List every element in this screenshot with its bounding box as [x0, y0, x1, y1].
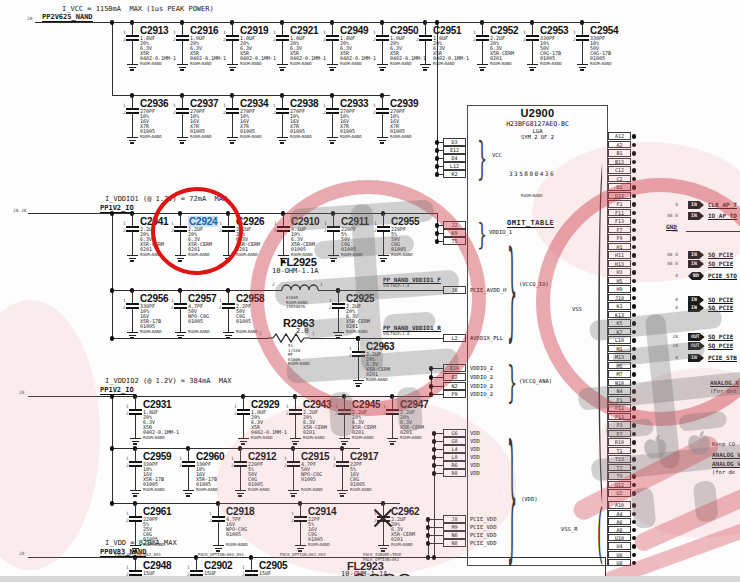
wire-v	[182, 114, 183, 137]
cap-value-C2941: 2.2UF 20% 6.3V X5R-CERM 0201	[140, 227, 164, 252]
cap-plate	[126, 226, 139, 228]
junction-dot	[632, 415, 636, 419]
cap-plate	[419, 35, 432, 37]
terminal-number: 1	[373, 103, 376, 108]
ground-icon	[127, 64, 138, 65]
wire-v	[392, 396, 393, 409]
chip-pin-A2: A2	[608, 141, 631, 148]
pin-number: 88 8	[662, 213, 678, 218]
chip-pin-D3: D3	[443, 138, 466, 145]
chip-group-label: (VCCQ_ANA)	[519, 378, 552, 384]
cap-value-C2937: 270PF 10% 16V X7R 01005	[190, 109, 205, 134]
terminal-number: 2	[126, 463, 129, 468]
net-label: PCIE_STB	[708, 354, 737, 362]
ground-icon	[377, 64, 388, 65]
junction-dot	[632, 544, 636, 548]
junction-dot	[632, 457, 636, 461]
chip-pin-J6: J6	[443, 286, 466, 293]
ground-icon	[390, 443, 393, 444]
chip-net-label: VSS	[572, 306, 582, 312]
ground-icon	[422, 67, 429, 68]
cap-room-note: ROOM=NAND	[143, 488, 165, 493]
ground-icon	[423, 69, 426, 70]
wire-v	[180, 213, 181, 226]
junction-dot	[110, 288, 114, 292]
side-note: ANALOG_V	[712, 451, 740, 459]
wire-v	[283, 232, 284, 255]
ground-icon	[290, 438, 301, 439]
wire-v	[188, 448, 189, 461]
cap-plate	[352, 351, 365, 353]
chip-pin-U2: U2	[608, 489, 631, 496]
net-flag-in-icon: IN	[688, 354, 704, 362]
net-flag-bd-icon: BD	[688, 272, 704, 280]
ground-icon	[327, 137, 338, 138]
wire-v	[332, 22, 333, 35]
wire-v	[112, 22, 113, 95]
terminal-number: 1	[324, 221, 327, 226]
ground-icon	[180, 69, 183, 70]
ground-icon	[293, 443, 296, 444]
pin-number: 8	[662, 305, 678, 310]
net-label: SQ_PCIE	[708, 296, 733, 304]
cap-value-C2962: 2.2UF 20% 6.3V X5R-CERM 0201	[391, 517, 415, 542]
junction-dot	[435, 156, 439, 160]
group-brace: }	[477, 220, 487, 248]
chip-pin-P7: P7	[608, 430, 631, 437]
cap-value-C2915: 4.7PF 50V NPO-C0G 01005	[301, 462, 322, 482]
pin-number: 8	[662, 273, 678, 278]
side-note: (For det	[710, 388, 737, 394]
net-label: SQ_PCIE	[708, 251, 733, 259]
wire-v	[482, 41, 483, 64]
wire-v	[383, 232, 384, 255]
chip-pin-label: PCIE_VDD	[470, 540, 497, 546]
junction-dot	[632, 440, 636, 444]
junction-dot	[632, 389, 636, 393]
terminal-number: 2	[274, 228, 277, 233]
terminal-number: 2	[219, 228, 222, 233]
ground-icon	[179, 67, 186, 68]
cap-room-note: ROOM=NAND	[366, 378, 388, 383]
chip-pin-H9: H9	[608, 285, 631, 292]
cap-room-note: ROOM=NAND	[390, 62, 412, 67]
junction-dot	[429, 392, 433, 396]
wire-h	[28, 396, 431, 397]
chip-pin-L10: L10	[608, 336, 631, 343]
terminal-number: 2	[123, 228, 126, 233]
resistor-notes: 5% 1/32W MF 01005 ROOM=NAND	[288, 344, 310, 367]
wire-v	[582, 22, 583, 35]
junction-dot	[110, 394, 114, 398]
terminal-number: 2	[223, 37, 226, 42]
cap-room-note: ROOM=NAND	[590, 62, 612, 67]
wire-h	[428, 527, 443, 528]
wire-v	[132, 22, 133, 35]
section-current-note: I_VCC = 1150mA MAX (1us PEAK POWER)	[62, 5, 214, 13]
wire-h	[428, 519, 443, 520]
terminal-number: 2	[259, 331, 262, 336]
cap-room-note: ROOM=NAND	[236, 330, 258, 335]
terminal-number: 2	[173, 37, 176, 42]
wire-h	[428, 543, 443, 544]
terminal-number: 1	[523, 30, 526, 35]
window-edge	[0, 576, 740, 582]
ground-icon	[280, 69, 283, 70]
ground-icon	[229, 140, 236, 141]
junction-dot	[432, 455, 436, 459]
cap-plate	[234, 461, 247, 463]
cap-room-note: ROOM=NAND	[190, 62, 212, 67]
cap-room-note: ROOM=NAND	[240, 135, 262, 140]
terminal-number: 2	[273, 37, 276, 42]
cap-value-C2960: 330PF 10% 16V X5R-17B 01005	[196, 462, 217, 487]
cap-plate	[294, 516, 307, 518]
ground-icon	[355, 383, 362, 384]
pin-number: 8	[662, 202, 678, 207]
cap-plate	[476, 35, 489, 37]
cap-pack-option: PACK_OPTION=0S2,0S3	[198, 553, 244, 558]
cap-value-C2925: 2.2UF 20% 6.3V X5R-CERM 0201	[346, 304, 370, 329]
terminal-number: 2	[173, 110, 176, 115]
terminal-number: 2	[349, 353, 352, 358]
net-label: SQ_PCIE	[708, 304, 733, 312]
side-note: Keep CO	[712, 441, 735, 447]
junction-dot	[632, 491, 636, 495]
cap-plate	[126, 303, 139, 305]
cap-plate	[174, 303, 187, 305]
terminal-number: 1	[126, 456, 129, 461]
ground-icon	[129, 67, 136, 68]
terminal-number: 1	[242, 565, 245, 570]
junction-dot	[632, 228, 636, 232]
terminal-number: 1	[284, 456, 287, 461]
terminal-number: 1	[126, 511, 129, 516]
net-flag-in-icon: IN	[688, 212, 704, 220]
ground-icon	[129, 335, 136, 336]
chip-pin-M5: M5	[608, 362, 631, 369]
ground-icon	[530, 69, 533, 70]
terminal-number: 2	[323, 37, 326, 42]
junction-dot	[632, 561, 636, 565]
wire-v	[132, 114, 133, 137]
pin-number: 28	[662, 334, 678, 339]
cap-value-C2931: 1.0UF 20% 6.3V X5R 0402-0.1MM-1	[143, 410, 179, 435]
terminal-number: 2	[373, 110, 376, 115]
ground-icon	[227, 137, 238, 138]
wire-v	[358, 357, 359, 380]
ground-icon	[336, 337, 339, 338]
ground-icon	[280, 142, 283, 143]
ground-icon	[226, 260, 229, 261]
chip-pin-R6: R6	[443, 461, 466, 468]
pin-number: 88 8	[662, 252, 678, 257]
cap-plate	[326, 35, 339, 37]
wire-v	[383, 213, 384, 226]
junction-dot	[435, 164, 439, 168]
wire-v	[282, 22, 283, 35]
net-label: SQ_PCIE	[708, 260, 733, 268]
ground-icon	[477, 64, 488, 65]
terminal-number: 2	[416, 37, 419, 42]
junction-dot	[435, 239, 439, 243]
cap-room-note: ROOM=NAND	[290, 62, 312, 67]
chip-pin-C2: C2	[608, 175, 631, 182]
wire-h	[112, 290, 282, 291]
ground-icon	[380, 142, 383, 143]
cap-value-C2958: 2.2PF 50V C0G 01005	[236, 304, 251, 324]
terminal-number: 1	[126, 565, 129, 570]
ground-icon	[329, 67, 336, 68]
ground-icon	[183, 490, 194, 491]
ground-icon	[229, 67, 236, 68]
cap-plate	[326, 108, 339, 110]
chip-pin-F9: F9	[608, 234, 631, 241]
ground-icon	[277, 137, 288, 138]
wire-v	[218, 503, 219, 516]
cap-plate	[222, 226, 235, 228]
ground-icon	[180, 142, 183, 143]
net-label: IO_AP_TO	[708, 212, 737, 220]
junction-dot	[432, 447, 436, 451]
terminal-number: 1	[320, 282, 323, 287]
ground-icon	[132, 493, 139, 494]
cap-plate	[287, 461, 300, 463]
chip-pin-U12: U12	[608, 481, 631, 488]
terminal-number: 1	[173, 103, 176, 108]
chip-pin-D1: D1	[608, 183, 631, 190]
wire-v	[532, 41, 533, 64]
wire-v	[332, 95, 333, 108]
terminal-number: 2	[223, 110, 226, 115]
chip-group-label: (VDD)	[521, 496, 538, 502]
cap-plate	[126, 35, 139, 37]
chip-pin-K5: K5	[608, 319, 631, 326]
wire-v	[180, 309, 181, 332]
junction-dot	[632, 483, 636, 487]
chip-pin-U6: U6	[608, 551, 631, 558]
wire-v	[332, 41, 333, 64]
ground-icon	[230, 69, 233, 70]
junction-dot	[435, 231, 439, 235]
ground-icon	[330, 142, 333, 143]
junction-dot	[429, 366, 433, 370]
junction-dot	[426, 533, 430, 537]
cap-room-note: ROOM=NAND	[301, 488, 323, 493]
ground-icon	[337, 490, 348, 491]
cap-value-C2917: 22PF 5% 16V C0G 01005	[350, 462, 365, 487]
group-brace: (	[597, 143, 603, 493]
terminal-number: 2	[126, 411, 129, 416]
chip-pin-J10: J10	[608, 294, 631, 301]
cap-value-C2926: 2.2UF 20% 6.3V X5R-CERM 0201	[236, 227, 260, 252]
ground-icon	[342, 443, 345, 444]
cap-room-note: ROOM=NAND	[140, 330, 162, 335]
pin-number: 28 28	[13, 208, 27, 213]
net-label: CLK_AP_T	[708, 201, 737, 209]
wire-v	[382, 95, 383, 108]
wire-v	[112, 213, 113, 338]
terminal-number: 1	[329, 298, 332, 303]
chip-symbol-note: SYM 2 OF 2	[467, 134, 608, 140]
junction-dot	[632, 321, 636, 325]
ground-icon	[240, 441, 247, 442]
ground-icon	[327, 64, 338, 65]
ground-icon	[290, 493, 297, 494]
chip-pin-N10: N10	[608, 379, 631, 386]
wire-h	[112, 503, 400, 504]
wire-v	[333, 232, 334, 255]
cap-plate	[376, 108, 389, 110]
junction-dot	[632, 474, 636, 478]
ground-icon	[179, 140, 186, 141]
chip-pin-T13: T13	[608, 455, 631, 462]
chip-pin-D4: D4	[443, 154, 466, 161]
chip-pin-label: PCIE_AVDD_H	[470, 287, 506, 293]
cap-value-C2955: 220PF 5% 50V C0G 01005	[391, 227, 406, 252]
chip-pin-N6: N6	[443, 531, 466, 538]
pin-number: 88 8	[662, 261, 678, 266]
cap-value-C2957: 4.7PF 50V NPO-C0G 01005	[188, 304, 209, 324]
cap-value-C2921: 1.0UF 20% 6.3V X5R 0402-0.1MM-1	[290, 36, 326, 61]
junction-dot	[432, 555, 436, 559]
chip-pin-L2: L2	[443, 334, 466, 341]
wire-v	[228, 290, 229, 303]
chip-pin-F7: F7	[608, 226, 631, 233]
wire-v	[338, 309, 339, 332]
ground-icon	[420, 64, 431, 65]
junction-dot	[426, 541, 430, 545]
ground-icon	[331, 260, 334, 261]
group-brace: }	[477, 138, 487, 180]
chip-pin-H5: H5	[608, 277, 631, 284]
ground-icon	[175, 332, 186, 333]
cap-room-note: ROOM=NAND	[143, 436, 165, 441]
chip-pin-H13: H13	[608, 260, 631, 267]
terminal-number: 1	[323, 30, 326, 35]
ground-icon	[330, 69, 333, 70]
chip-pin-K13: K13	[608, 311, 631, 318]
chip-pin-H11: H11	[608, 251, 631, 258]
cap-plate	[336, 461, 349, 463]
cap-plate	[222, 303, 235, 305]
chip-pin-E12: E12	[443, 146, 466, 153]
cap-value-C2945: 2.2UF 20% 6.3V X5R-CERM 0201	[352, 410, 376, 435]
terminal-number: 2	[284, 463, 287, 468]
schematic-canvas: U2900 H23BFG8127AEQ-BC LGA SYM 2 OF 2 I_…	[0, 0, 740, 582]
net-flag-in-icon: IN	[688, 304, 704, 312]
wire-v	[180, 232, 181, 255]
terminal-number: 1	[223, 103, 226, 108]
cap-pack-option: PACK_OPTION=0S2,0S3	[280, 553, 326, 558]
net-label-gnd: GND	[666, 223, 677, 231]
junction-dot	[632, 406, 636, 410]
chip-pin-R10: R10	[608, 438, 631, 445]
junction-dot	[632, 185, 636, 189]
ground-icon	[133, 443, 136, 444]
chip-pin-P9: P9	[443, 390, 466, 397]
wire-v	[295, 415, 296, 438]
junction-dot	[426, 555, 430, 559]
cap-plate	[129, 570, 142, 572]
cap-plate	[276, 35, 289, 37]
terminal-number: 1	[416, 30, 419, 35]
wire-v	[333, 213, 334, 226]
net-flag-in-icon: IN	[688, 251, 704, 259]
ground-icon	[335, 335, 342, 336]
chip-pin-label: VDDIO_2	[470, 383, 493, 389]
ground-icon	[579, 67, 586, 68]
junction-dot	[632, 194, 636, 198]
ground-icon	[387, 438, 398, 439]
wire-v	[135, 503, 136, 516]
chip-pin-label: VDDIO_2	[470, 365, 493, 371]
chip-pin-T9: T9	[608, 472, 631, 479]
group-brace: }	[507, 430, 517, 560]
terminal-number: 2	[291, 518, 294, 523]
terminal-number: 2	[333, 463, 336, 468]
ground-icon	[177, 137, 188, 138]
terminal-number: 2	[324, 228, 327, 233]
side-note: ANALOG_X	[710, 379, 739, 387]
pin-number: 28	[27, 16, 32, 21]
ground-icon	[132, 548, 139, 549]
ground-icon	[238, 438, 249, 439]
ground-icon	[379, 140, 386, 141]
chip-pin-F1: F1	[608, 200, 631, 207]
wire-v	[132, 309, 133, 332]
junction-dot	[632, 553, 636, 557]
cap-room-note: ROOM=NAND	[226, 543, 248, 548]
terminal-number: 2	[219, 305, 222, 310]
wire-v	[240, 467, 241, 490]
terminal-number: 1	[473, 30, 476, 35]
cap-value-C2954: 330PF 10% 50V C0G-17B 01005	[590, 36, 611, 61]
junction-dot	[632, 398, 636, 402]
wire-v	[132, 41, 133, 64]
wire-v	[282, 114, 283, 137]
chip-pin-U10: U10	[608, 534, 631, 541]
wire-h	[28, 213, 437, 214]
cap-value-C2961: 220PF 5% 25V C0G 01005	[143, 517, 158, 542]
cap-plate	[245, 570, 258, 572]
terminal-number: 2	[272, 282, 275, 287]
junction-dot	[432, 439, 436, 443]
chip-pin-F13: F13	[608, 217, 631, 224]
ground-icon	[279, 140, 286, 141]
cap-room-note: ROOM=NAND	[352, 436, 374, 441]
cap-room-note: ROOM=NAND	[391, 253, 413, 258]
pin-number: 28	[662, 343, 678, 348]
wire-v	[218, 522, 219, 545]
chip-pin-label: VDD	[470, 470, 480, 476]
terminal-number: 2	[383, 411, 386, 416]
junction-dot	[435, 172, 439, 176]
wire-v	[382, 22, 383, 35]
chip-pin-label: PCIE_VDD	[470, 532, 497, 538]
ground-icon	[381, 260, 384, 261]
wire-v	[132, 290, 133, 303]
cap-plate	[338, 409, 351, 411]
ground-icon	[241, 443, 244, 444]
wire-v	[232, 114, 233, 137]
cap-plate	[176, 35, 189, 37]
cap-value-C2912: 220PF 5% 50V C0G 01005	[248, 462, 263, 487]
wire-v	[482, 22, 483, 35]
cap-pack-option: PACK_OPTION=0S2,0S3	[115, 553, 161, 558]
terminal-number: 1	[291, 511, 294, 516]
chip-pin-A10: A10	[608, 501, 631, 508]
